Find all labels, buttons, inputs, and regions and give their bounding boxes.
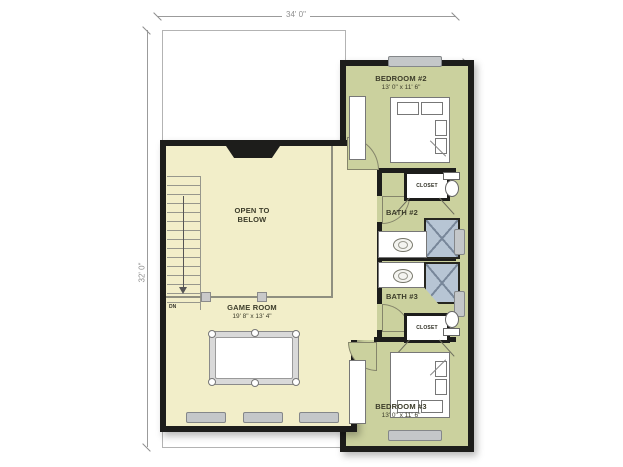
game-room-window: [243, 412, 283, 423]
bath3-toilet-bowl: [445, 311, 459, 328]
wall-opening-upper: [333, 166, 346, 194]
bed-shelf: [435, 120, 447, 136]
railing-post: [201, 292, 211, 302]
bed-pillow: [421, 102, 443, 115]
bedroom2-dresser: [349, 96, 366, 160]
wall-hall-bath-1: [377, 168, 382, 196]
stair-arrow-line: [183, 196, 184, 288]
pool-pocket: [251, 329, 259, 337]
railing-post: [257, 292, 267, 302]
left-dimension-label: 32' 0": [137, 259, 146, 287]
bedroom2-label: BEDROOM #2: [346, 74, 456, 83]
bedroom3-label: BEDROOM #3: [346, 402, 456, 411]
pool-pocket: [292, 330, 300, 338]
bed-shelf: [435, 379, 447, 395]
bath2-closet-label: CLOSET: [416, 183, 437, 189]
railing-vertical: [331, 146, 333, 296]
open-to-below-label: OPEN TO BELOW: [234, 206, 270, 225]
bath2-label: BATH #2: [374, 208, 430, 217]
game-room-label: GAME ROOM: [197, 303, 307, 312]
bath3-toilet-tank: [443, 328, 460, 336]
top-dimension-label: 34' 0": [282, 10, 310, 19]
sink: [393, 238, 413, 252]
game-room-window: [299, 412, 339, 423]
sink-basin: [398, 241, 408, 249]
fireplace: [226, 146, 280, 158]
bedroom3-window: [388, 430, 442, 441]
pool-pocket: [208, 378, 216, 386]
bath3-closet-label: CLOSET: [416, 325, 437, 331]
stairs-dn-label: DN: [169, 304, 176, 310]
bath-window: [454, 229, 465, 255]
game-room-window: [186, 412, 226, 423]
pool-pocket: [208, 330, 216, 338]
pool-table-felt: [215, 337, 293, 379]
pool-pocket: [292, 378, 300, 386]
bedroom2-window: [388, 56, 442, 67]
bath2-vanity: [378, 231, 427, 258]
bath3-label: BATH #3: [374, 292, 430, 301]
left-dimension-line: [147, 30, 148, 447]
pool-table: [209, 331, 299, 385]
railing-horizontal: [166, 296, 333, 298]
sink: [393, 269, 413, 283]
pool-pocket: [251, 379, 259, 387]
bed-pillow: [397, 102, 419, 115]
roof-outline-upper: [162, 30, 346, 149]
bath3-vanity: [378, 262, 427, 288]
floor-plan: 34' 0" 32' 0" 34' 8" BEDROOM #2 13' 0" x…: [0, 0, 623, 467]
hallway: [346, 168, 377, 340]
stair-arrow-head: [179, 287, 187, 294]
bedroom2-size: 13' 0" x 11' 6": [346, 84, 456, 91]
wall-opening-lower: [333, 306, 346, 340]
bath2-toilet-tank: [443, 172, 460, 180]
game-room-size: 19' 8" x 13' 4": [197, 313, 307, 320]
sink-basin: [398, 272, 408, 280]
bedroom3-size: 13' 0" x 11' 6": [346, 412, 456, 419]
bath2-toilet-bowl: [445, 180, 459, 197]
bedroom2-bed: [390, 97, 450, 163]
